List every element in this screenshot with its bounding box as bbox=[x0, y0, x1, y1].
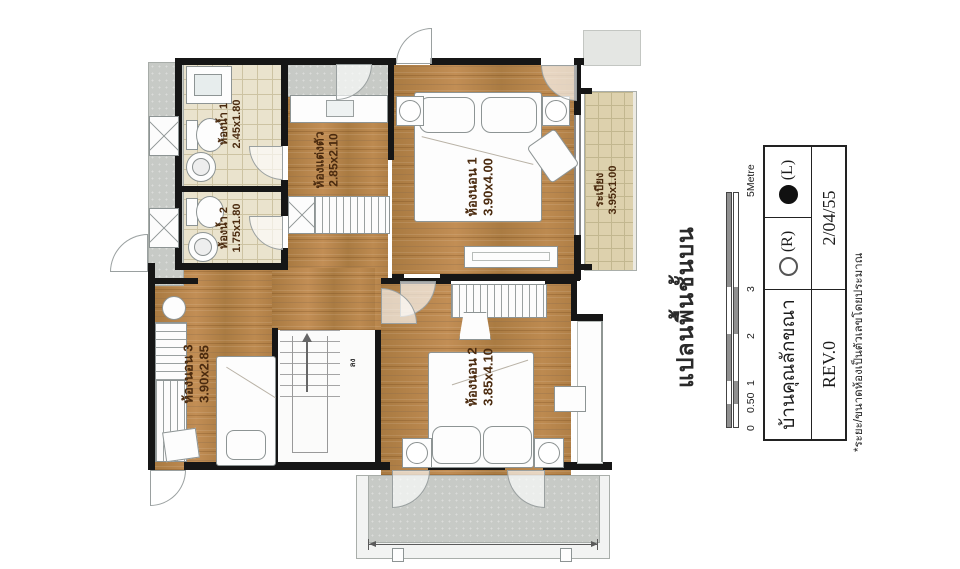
lamp bbox=[406, 442, 428, 464]
room-name: ห้องน้ำ 2 bbox=[218, 204, 231, 253]
scale-seg bbox=[727, 404, 731, 427]
wall bbox=[148, 263, 155, 470]
terrace-post bbox=[560, 548, 572, 562]
option-left: (L) bbox=[765, 147, 811, 217]
desk bbox=[162, 428, 200, 462]
pillow bbox=[481, 97, 537, 133]
chair bbox=[459, 312, 491, 340]
room-dims: 3.95x1.00 bbox=[607, 166, 620, 215]
room-label-bedroom-3: ห้องนอน 3 3.90x2.85 bbox=[180, 344, 211, 403]
scale-bar-strip bbox=[726, 192, 732, 428]
scale-seg bbox=[727, 193, 731, 287]
stair-rail bbox=[292, 336, 328, 453]
closet-shelf-unit bbox=[288, 196, 316, 234]
wall bbox=[375, 330, 381, 470]
scale-tick-5m: 5Metre bbox=[745, 164, 757, 197]
scale-bar-strip bbox=[733, 192, 739, 428]
desk bbox=[554, 386, 586, 412]
dimension-line bbox=[368, 544, 598, 545]
pillow bbox=[226, 430, 266, 460]
scale-seg bbox=[727, 334, 731, 381]
room-label-balcony: ระเบียง 3.95x1.00 bbox=[594, 166, 620, 215]
planter-box bbox=[149, 116, 179, 156]
planter-box bbox=[149, 208, 179, 248]
scale-tick-0: 0 bbox=[745, 425, 757, 431]
hall-floor bbox=[272, 268, 375, 330]
room-label-bathroom-2: ห้องน้ำ 2 1.75x1.80 bbox=[218, 204, 244, 253]
stair-down-label: ลง bbox=[348, 359, 358, 368]
room-name: ห้องน้ำ 1 bbox=[218, 100, 231, 149]
pillow bbox=[432, 426, 481, 464]
room-dims: 3.85x4.10 bbox=[480, 347, 496, 406]
pedestal-sink-basin bbox=[194, 238, 212, 256]
window-bedroom1-balcony bbox=[574, 115, 581, 235]
option-right-label: (R) bbox=[779, 231, 797, 252]
wall bbox=[571, 314, 603, 321]
wall bbox=[184, 462, 390, 470]
scale-seg bbox=[727, 381, 731, 404]
door-bedroom3-exit bbox=[150, 470, 186, 506]
wall bbox=[281, 248, 288, 270]
wall bbox=[578, 264, 592, 270]
wall bbox=[281, 180, 288, 216]
room-label-bedroom-1: ห้องนอน 1 3.90x4.00 bbox=[464, 157, 495, 216]
lamp bbox=[545, 100, 567, 122]
room-label-bedroom-2: ห้องนอน 2 3.85x4.10 bbox=[464, 347, 495, 406]
stool bbox=[162, 296, 186, 320]
scale-seg bbox=[734, 404, 738, 427]
scale-seg bbox=[734, 193, 738, 287]
room-name: ห้องนอน 2 bbox=[464, 347, 480, 406]
stair-arrow-head bbox=[302, 333, 312, 342]
wall bbox=[430, 58, 541, 65]
dressing-vanity-sink bbox=[326, 100, 354, 117]
scale-tick-050: 0.50 bbox=[745, 393, 757, 413]
wall bbox=[578, 88, 592, 94]
scale-bar bbox=[726, 192, 742, 428]
project-name: บ้านคุณลักขณา bbox=[765, 289, 811, 439]
roof-outline-top-right bbox=[583, 30, 641, 66]
approximation-note: *ระยะ/ขนาดห้องเป็นตัวเลขโดยประมาณ bbox=[850, 253, 868, 452]
wall bbox=[571, 278, 577, 318]
scale-tick-2: 2 bbox=[745, 333, 757, 339]
room-name: ห้องนอน 3 bbox=[180, 344, 196, 403]
wall bbox=[175, 186, 285, 192]
title-block-row-1: บ้านคุณลักขณา (R) (L) bbox=[765, 147, 812, 439]
pillow bbox=[483, 426, 532, 464]
pedestal-sink-basin bbox=[192, 158, 210, 176]
stair-arrow-shaft bbox=[306, 340, 308, 392]
room-name: ห้องนอน 1 bbox=[464, 157, 480, 216]
room-name: ระเบียง bbox=[594, 166, 607, 215]
wardrobe-hangers bbox=[314, 196, 390, 234]
room-name: ห้องแต่งตัว bbox=[313, 132, 327, 189]
scale-tick-1: 1 bbox=[745, 380, 757, 386]
date: 2/04/55 bbox=[812, 147, 846, 289]
room-label-bathroom-1: ห้องน้ำ 1 2.45x1.80 bbox=[218, 100, 244, 149]
scale-seg bbox=[727, 287, 731, 334]
dimension-arrow-right bbox=[591, 541, 598, 547]
scale-seg bbox=[734, 381, 738, 404]
door-service-left bbox=[110, 234, 148, 272]
wall bbox=[388, 58, 394, 160]
option-left-label: (L) bbox=[779, 160, 797, 180]
wall bbox=[175, 58, 288, 65]
radio-filled-icon bbox=[779, 185, 798, 204]
vanity-sink bbox=[194, 74, 222, 96]
wall bbox=[148, 278, 198, 284]
wall bbox=[175, 263, 288, 270]
revision: REV.0 bbox=[812, 289, 846, 439]
pillow bbox=[419, 97, 475, 133]
title-block-row-2: REV.0 2/04/55 bbox=[812, 147, 846, 439]
dimension-arrow-left bbox=[369, 541, 376, 547]
lamp bbox=[538, 442, 560, 464]
window-bay-frame bbox=[601, 321, 603, 462]
lamp bbox=[399, 100, 421, 122]
door-bedroom1-top-left bbox=[396, 28, 432, 64]
room-dims: 2.45x1.80 bbox=[231, 100, 244, 149]
option-right: (R) bbox=[765, 217, 811, 289]
room-dims: 2.85x2.10 bbox=[327, 132, 341, 189]
room-dims: 3.90x4.00 bbox=[480, 157, 496, 216]
room-label-dressing: ห้องแต่งตัว 2.85x2.10 bbox=[313, 132, 342, 189]
scale-seg bbox=[734, 287, 738, 334]
terrace-post bbox=[392, 548, 404, 562]
title-block: บ้านคุณลักขณา (R) (L) REV.0 2/04/55 bbox=[763, 145, 847, 441]
bench-cushion-line bbox=[472, 252, 550, 261]
room-dims: 3.90x2.85 bbox=[196, 344, 212, 403]
drawing-title: แปลนพื้นชั้นบน bbox=[668, 226, 704, 388]
scale-seg bbox=[734, 334, 738, 381]
scale-tick-3: 3 bbox=[745, 286, 757, 292]
radio-open-icon bbox=[779, 257, 798, 276]
floor-plan-canvas: ห้องน้ำ 1 2.45x1.80 ห้องน้ำ 2 1.75x1.80 … bbox=[0, 0, 960, 569]
wall bbox=[281, 58, 288, 146]
room-dims: 1.75x1.80 bbox=[231, 204, 244, 253]
